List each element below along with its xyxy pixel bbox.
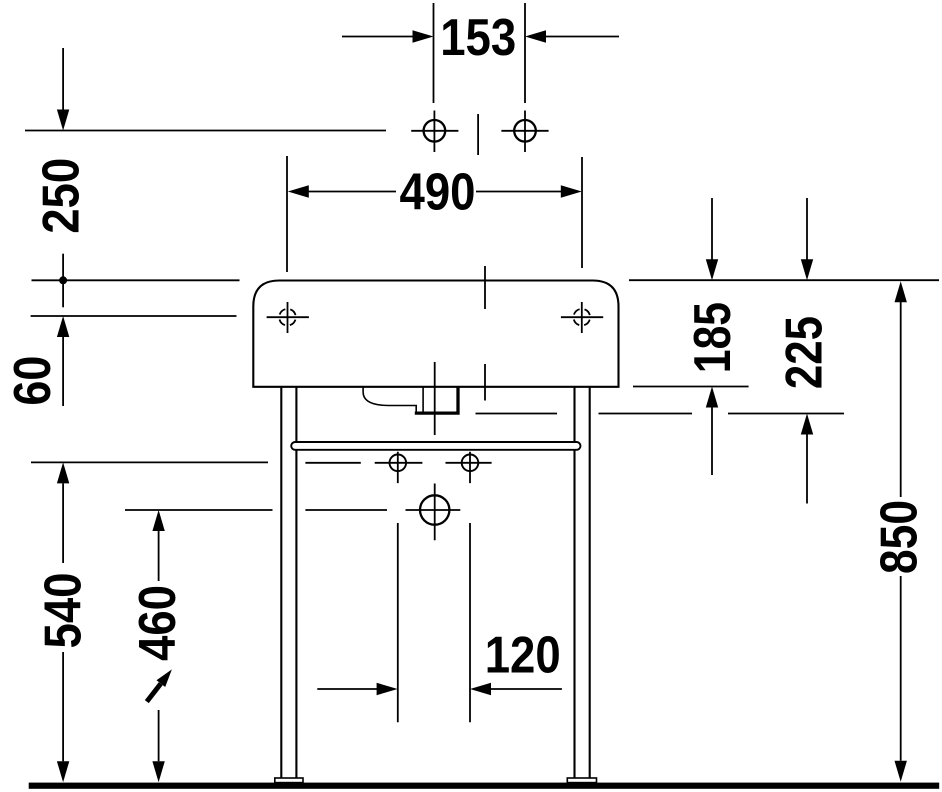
svg-text:120: 120 (485, 627, 561, 685)
svg-text:490: 490 (400, 164, 476, 222)
svg-text:460: 460 (129, 585, 187, 661)
svg-text:540: 540 (35, 573, 93, 649)
svg-text:250: 250 (33, 158, 91, 234)
svg-text:850: 850 (871, 500, 929, 574)
svg-text:225: 225 (776, 316, 834, 389)
svg-text:185: 185 (684, 302, 742, 373)
svg-text:153: 153 (440, 9, 516, 67)
svg-text:60: 60 (4, 356, 62, 406)
